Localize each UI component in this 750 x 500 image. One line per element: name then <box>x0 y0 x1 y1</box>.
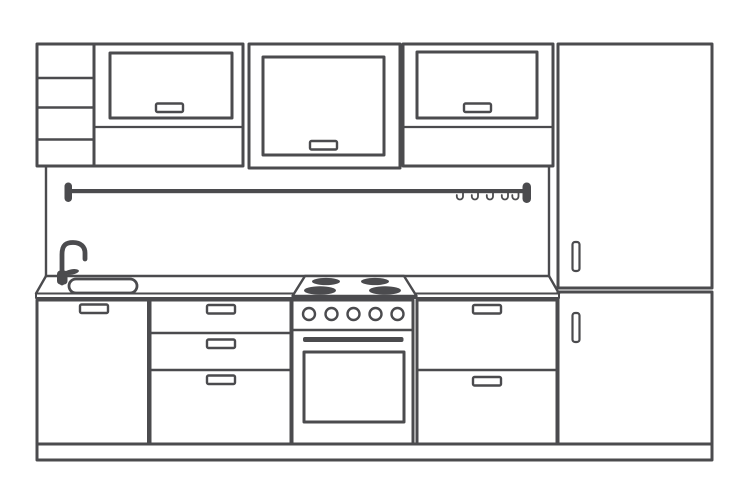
burner-front-right <box>369 286 401 294</box>
kitchen-line-drawing <box>0 0 750 500</box>
burner-back-left <box>312 278 340 285</box>
base-cabinet-left-handle <box>80 305 108 314</box>
wall-cabinet-left-handle <box>156 104 183 113</box>
utensil-rail-right-cap <box>523 183 532 204</box>
sink-basin <box>69 279 137 293</box>
wall-cabinet-middle-handle <box>310 141 337 150</box>
base-cabinet-right-frame <box>417 300 557 444</box>
base-cabinet-left-door <box>37 300 149 444</box>
drawer-handle-1 <box>207 305 235 314</box>
oven-knob-5 <box>392 308 404 320</box>
kitchen-elevation-svg <box>0 0 750 500</box>
oven-knob-3 <box>348 308 360 320</box>
open-shelf-unit <box>37 44 94 166</box>
oven-knob-1 <box>303 308 315 320</box>
tall-cabinet-lower-handle <box>573 313 580 342</box>
drawer-unit-frame <box>150 300 291 444</box>
rail-hook-5 <box>512 193 518 200</box>
rail-hook-2 <box>472 193 478 200</box>
base-cabinet-right-handle-bottom <box>473 377 501 386</box>
oven-window <box>304 352 404 422</box>
tall-cabinet-lower-door <box>558 292 712 444</box>
tall-cabinet-upper-handle <box>573 242 580 271</box>
oven-knob-2 <box>326 308 338 320</box>
burner-front-left <box>304 286 336 294</box>
oven-knob-4 <box>370 308 382 320</box>
rail-hook-3 <box>487 193 493 200</box>
wall-cabinet-right-handle <box>464 104 491 113</box>
drawer-handle-3 <box>207 376 235 385</box>
countertop-left-end <box>36 276 46 294</box>
tall-cabinet-upper-door <box>558 44 712 288</box>
rail-hook-4 <box>502 193 508 200</box>
faucet-base <box>57 271 68 285</box>
oven-handle-bar <box>303 337 404 342</box>
utensil-rail-bar <box>69 189 524 193</box>
rail-hook-1 <box>457 193 463 200</box>
drawer-handle-2 <box>207 340 235 349</box>
plinth <box>37 444 712 460</box>
utensil-rail-left-cap <box>65 183 73 203</box>
burner-back-right <box>361 278 389 285</box>
base-cabinet-right-handle-top <box>473 305 501 314</box>
